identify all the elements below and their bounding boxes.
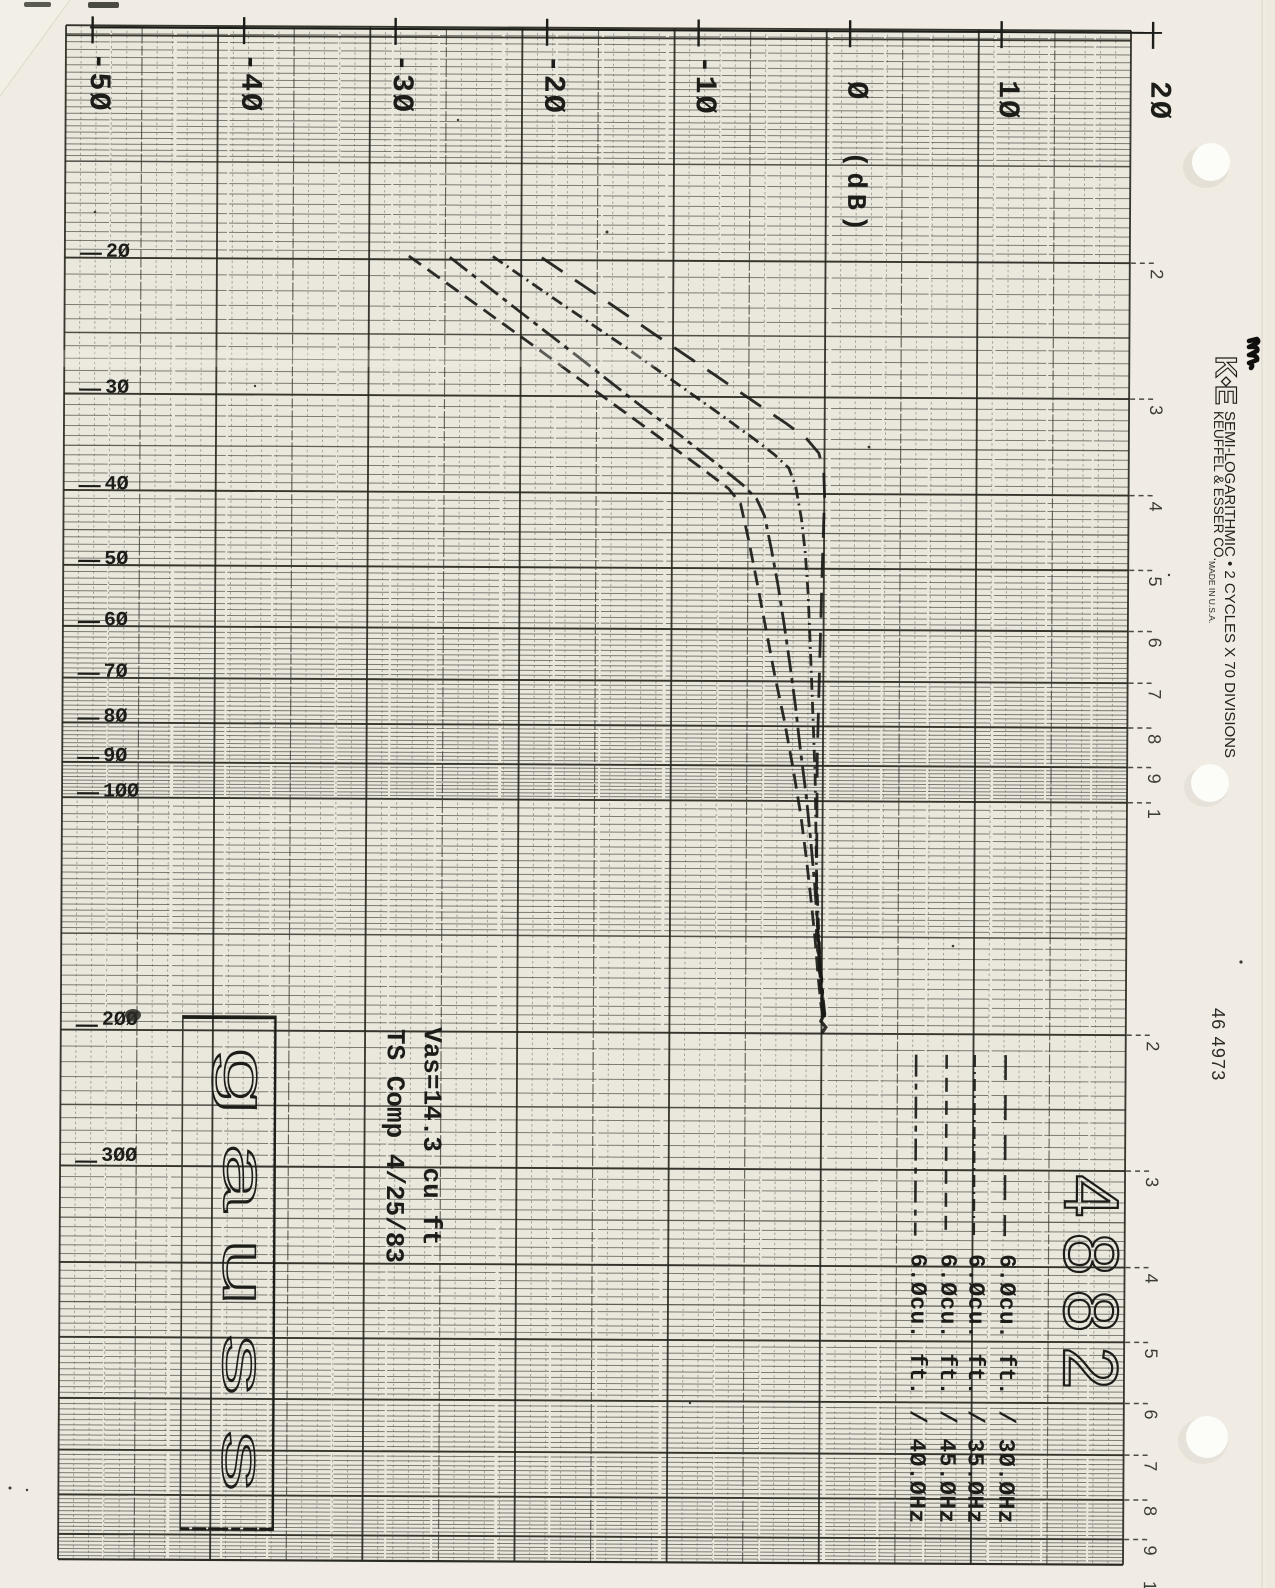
svg-text:g: g [211,1047,279,1116]
svg-text:s: s [209,1430,277,1492]
svg-text:1: 1 [1144,809,1164,819]
svg-text:(dB): (dB) [839,151,869,236]
svg-text:7Ø: 7Ø [104,661,128,684]
svg-text:u: u [210,1238,278,1307]
svg-text:1ØØ: 1ØØ [103,780,139,803]
svg-text:E: E [1209,385,1242,405]
svg-text:2Ø: 2Ø [106,241,130,264]
svg-text:s: s [210,1334,278,1396]
svg-text:3: 3 [1142,1177,1162,1187]
svg-text:3: 3 [1146,405,1166,415]
svg-text:8: 8 [1047,1289,1133,1332]
svg-text:a: a [211,1143,279,1212]
svg-text:MADE IN U.S.A.: MADE IN U.S.A. [1207,561,1217,623]
svg-text:6.Øcu. ft. / 35.ØHz: 6.Øcu. ft. / 35.ØHz [961,1254,988,1524]
svg-text:8: 8 [1048,1232,1134,1275]
svg-text:8Ø: 8Ø [103,706,127,729]
svg-text:TS Comp 4/25/83: TS Comp 4/25/83 [379,1029,410,1263]
svg-text:9: 9 [1144,774,1164,784]
svg-text:6: 6 [1141,1410,1161,1420]
svg-text:3Ø: 3Ø [105,377,129,400]
svg-text:46 4973: 46 4973 [1208,1008,1228,1081]
svg-text:8: 8 [1140,1506,1160,1516]
svg-text:K: K [1209,356,1242,378]
svg-text:9Ø: 9Ø [103,745,127,768]
svg-text:8: 8 [1144,734,1164,744]
svg-text:-3Ø: -3Ø [384,54,418,114]
svg-text:4Ø: 4Ø [105,473,129,496]
svg-text:2: 2 [1047,1346,1133,1389]
svg-text:Ø: Ø [838,81,872,101]
svg-text:6.Øcu. ft. / 3Ø.ØHz: 6.Øcu. ft. / 3Ø.ØHz [992,1254,1019,1524]
svg-text:4: 4 [1146,502,1166,512]
svg-text:10: 10 [1140,1581,1160,1588]
svg-text:4: 4 [1048,1174,1134,1217]
svg-text:5: 5 [1141,1348,1161,1358]
svg-text:2: 2 [1143,1041,1163,1051]
svg-text:-1Ø: -1Ø [687,55,721,115]
svg-text:2: 2 [1147,269,1167,279]
svg-text:6.Øcu. ft. / 4Ø.ØHz: 6.Øcu. ft. / 4Ø.ØHz [903,1254,930,1524]
svg-text:Vas=14.3 cu ft: Vas=14.3 cu ft [416,1027,447,1246]
svg-text:KEUFFEL & ESSER CO.: KEUFFEL & ESSER CO. [1211,411,1226,561]
svg-text:-2Ø: -2Ø [535,55,569,115]
svg-text:-5Ø: -5Ø [81,52,115,112]
svg-text:5: 5 [1145,576,1165,586]
svg-text:3ØØ: 3ØØ [101,1145,137,1168]
svg-text:-4Ø: -4Ø [232,53,266,113]
svg-text:6Ø: 6Ø [104,609,128,632]
svg-text:7: 7 [1145,689,1165,699]
svg-text:1Ø: 1Ø [990,80,1024,120]
svg-text:5Ø: 5Ø [104,548,128,571]
svg-text:2Ø: 2Ø [1141,81,1175,121]
svg-text:4: 4 [1141,1274,1161,1284]
svg-text:7: 7 [1140,1461,1160,1471]
svg-text:6: 6 [1145,638,1165,648]
svg-text:9: 9 [1140,1546,1160,1556]
svg-text:6.Øcu. ft. / 45.ØHz: 6.Øcu. ft. / 45.ØHz [933,1254,960,1524]
